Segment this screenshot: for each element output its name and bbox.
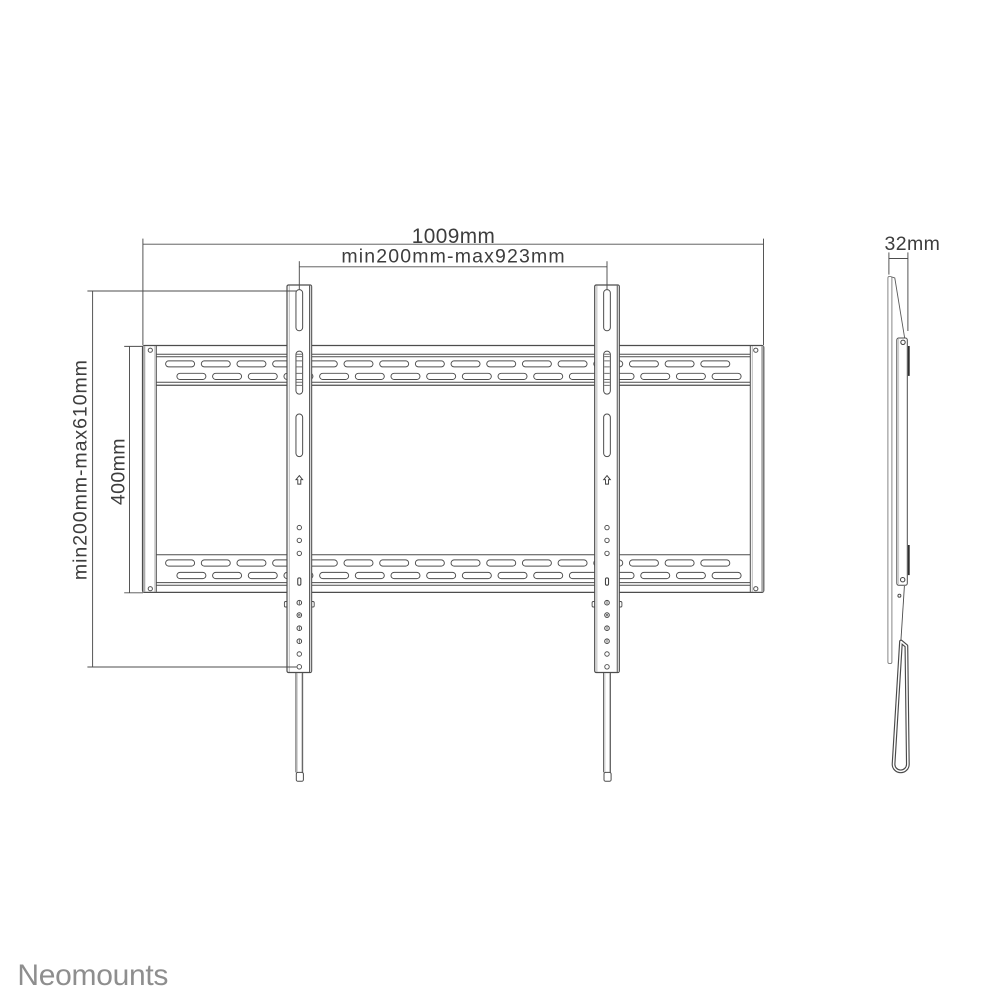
svg-text:min200mm-max610mm: min200mm-max610mm [70, 359, 92, 580]
svg-text:min200mm-max923mm: min200mm-max923mm [341, 246, 565, 268]
svg-text:32mm: 32mm [885, 233, 941, 255]
svg-text:400mm: 400mm [107, 438, 129, 505]
svg-text:Neomounts: Neomounts [17, 959, 168, 992]
svg-text:1009mm: 1009mm [412, 225, 496, 248]
